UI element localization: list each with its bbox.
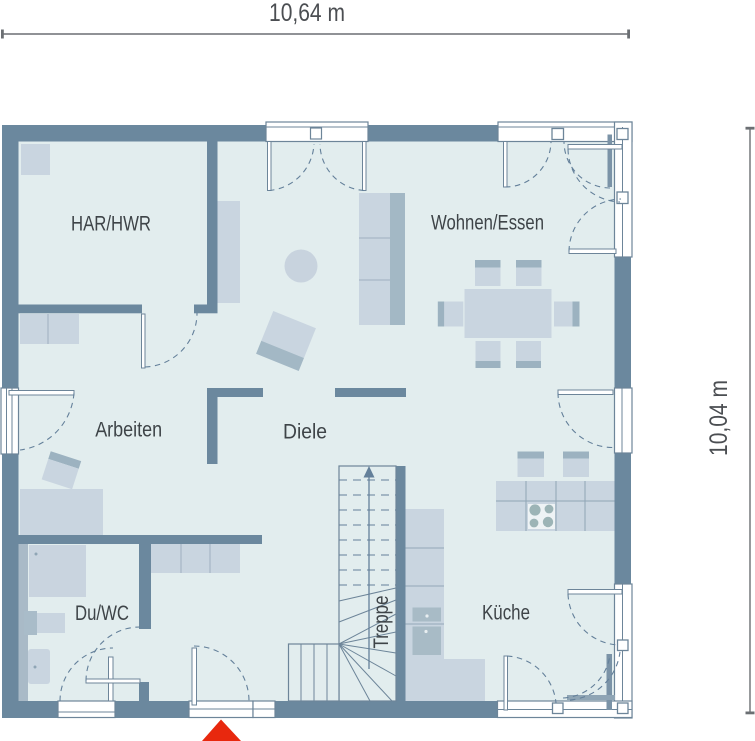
svg-text:HAR/HWR: HAR/HWR (71, 213, 151, 236)
svg-text:10,04 m: 10,04 m (705, 380, 733, 456)
svg-text:Treppe: Treppe (370, 596, 393, 649)
svg-text:Diele: Diele (283, 420, 327, 444)
svg-text:10,64 m: 10,64 m (269, 0, 345, 27)
svg-text:Du/WC: Du/WC (75, 602, 129, 625)
svg-text:Arbeiten: Arbeiten (95, 419, 162, 442)
svg-text:Küche: Küche (482, 602, 530, 625)
svg-text:Wohnen/Essen: Wohnen/Essen (431, 212, 544, 235)
